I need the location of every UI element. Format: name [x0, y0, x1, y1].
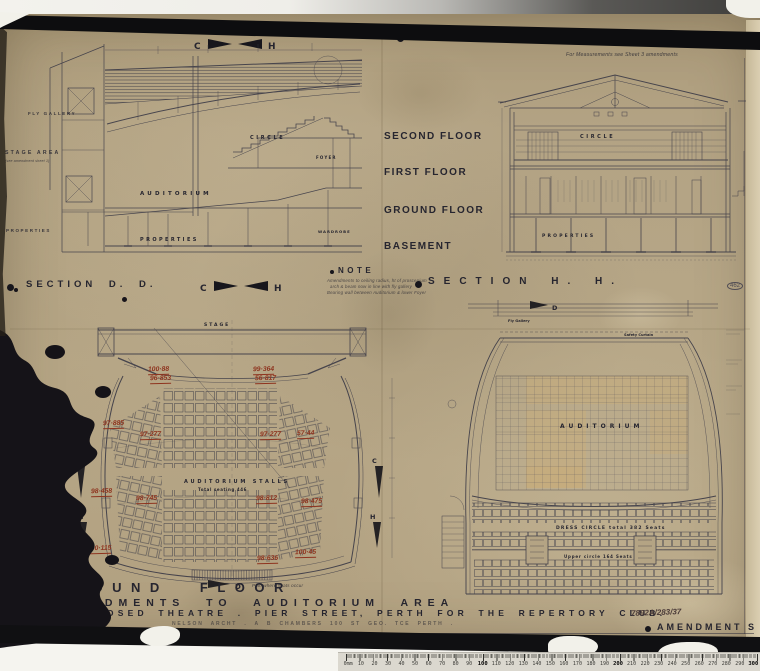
red-level-annotation: 96·853: [150, 375, 171, 384]
bullet-icon: [415, 281, 422, 288]
wardrobe-label: WARDROBE: [318, 229, 351, 234]
ink-spot: [14, 288, 18, 292]
ruler-label: 160: [557, 661, 571, 667]
red-level-annotation: 100·45: [295, 549, 316, 558]
ink-spot: [122, 297, 127, 302]
ruler-label: 270: [706, 661, 720, 667]
red-level-annotation: 98·475: [301, 498, 322, 507]
red-level-annotation: 97·277: [140, 431, 161, 440]
upper-circle-label: Upper circle 164 Seats: [564, 554, 633, 559]
ground-floor-label: GROUND FLOOR: [384, 205, 484, 216]
title-line-project: PROPOSED THEATRE . PIER STREET, PERTH FO…: [66, 608, 666, 618]
red-level-annotation: 100·88: [148, 366, 169, 375]
hh-circle-label: CIRCLE: [580, 134, 615, 140]
ruler-label: 40: [395, 661, 409, 667]
sheet-border-line: [124, 633, 754, 634]
basement-label: BASEMENT: [384, 241, 452, 252]
ruler-label: 70: [435, 661, 449, 667]
hh-top-dimension: 56'-6": [589, 40, 609, 45]
first-floor-label: FIRST FLOOR: [384, 167, 467, 178]
cut-arrow-icon: [373, 522, 381, 548]
first-floor-plan-drawing: D Fly Gallery Safety Curtain AUDITORIUM …: [438, 298, 750, 600]
fly-gallery-plan-label: Fly Gallery: [508, 319, 530, 323]
properties-left-label: PROPERTIES: [6, 228, 51, 233]
ruler-label: 290: [733, 661, 747, 667]
stalls-label: AUDITORIUM STALLS: [184, 479, 290, 485]
ruler-label: 140: [530, 661, 544, 667]
scale-ruler: 0mm1020304050607080901001101201301401501…: [338, 652, 760, 671]
stage-area-note: (see amendment sheet 1): [5, 159, 49, 163]
section-dd-caption: SECTION D. D.: [26, 279, 157, 290]
cut-flag-icon: [214, 281, 238, 291]
amendment-label: AMENDMENT S: [657, 622, 757, 632]
ruler-label: 10: [354, 661, 368, 667]
architect-line: NELSON ARCHT . A B CHAMBERS 100 ST GEO. …: [172, 621, 454, 627]
plan-marker-h: H: [370, 513, 375, 521]
ruler-label: 20: [368, 661, 382, 667]
ruler-label: 90: [462, 661, 476, 667]
bullet-icon: [7, 284, 14, 291]
cut-flag-icon: [244, 281, 268, 291]
ruler-label: 190: [598, 661, 612, 667]
plan-marker-c: C: [372, 457, 377, 465]
ruler-label: 250: [679, 661, 693, 667]
red-level-annotation: 98·812: [256, 495, 277, 504]
ruler-ticks-major: [346, 654, 758, 661]
job-number-handwritten: 7892A/283/37: [631, 607, 682, 618]
ruler-label: 50: [408, 661, 422, 667]
ruler-label: 210: [625, 661, 639, 667]
cut-marker-c: C: [200, 284, 207, 294]
note-title: NOTE: [338, 266, 374, 275]
ruler-label: 280: [720, 661, 734, 667]
ruler-label: 220: [638, 661, 652, 667]
stage-label: STAGE: [204, 322, 230, 328]
ink-blot: [0, 330, 140, 660]
foyer-label: FOYER: [316, 155, 337, 160]
ruler-label: 150: [544, 661, 558, 667]
red-level-annotation: 98·636: [257, 555, 278, 564]
scanned-architectural-drawing: DIMENSIONS TO GOVERN SCALE . 63'-8½" For…: [0, 0, 760, 671]
ruler-label: 100: [476, 661, 490, 667]
cut-arrow-icon: [375, 466, 383, 498]
section-hh-drawing: CIRCLE PROPERTIES: [496, 56, 748, 268]
seating-total-label: Total seating 446: [198, 487, 247, 492]
red-level-annotation: 57·44: [297, 430, 315, 439]
fly-gallery-label: FLY GALLERY: [28, 111, 76, 116]
red-level-annotation: 97·277: [260, 431, 281, 440]
note-line: Bearing wall between Auditorium & lower …: [327, 290, 426, 295]
properties-label: PROPERTIES: [140, 237, 199, 243]
stage-area-label: STAGE AREA: [5, 150, 60, 156]
red-level-annotation: 56·817: [255, 375, 276, 384]
ruler-label: 130: [517, 661, 531, 667]
ruler-label: 260: [692, 661, 706, 667]
ruler-label: 170: [571, 661, 585, 667]
ruler-label: 60: [422, 661, 436, 667]
safety-curtain-label: Safety Curtain: [624, 333, 654, 337]
ruler-label: 120: [503, 661, 517, 667]
plan-marker-d: D: [552, 304, 558, 312]
ruler-label: 200: [611, 661, 625, 667]
ruler-label: 80: [449, 661, 463, 667]
note-line: Amendments to ceiling radius, ht of pros…: [327, 278, 427, 283]
ruler-labels: 0mm1020304050607080901001101201301401501…: [342, 661, 760, 667]
auditorium-label: AUDITORIUM: [140, 191, 212, 197]
ruler-label: 180: [584, 661, 598, 667]
ruler-label: 0mm: [342, 661, 354, 667]
cut-flags-mid: C H: [186, 276, 296, 296]
hh-properties-label: PROPERTIES: [542, 233, 595, 239]
section-dd-drawing: AUDITORIUM CIRCLE PROPERTIES FOYER WARDR…: [28, 40, 362, 268]
bullet-icon: [645, 626, 651, 632]
bullet-icon: [397, 35, 404, 42]
ruler-label: 300: [747, 661, 760, 667]
red-level-annotation: 99·364: [253, 366, 274, 375]
circled-number: 462: [727, 282, 743, 290]
cut-marker-h: H: [274, 284, 282, 294]
ruler-label: 110: [489, 661, 503, 667]
section-hh-caption: SECTION H. H.: [428, 276, 623, 287]
ruler-label: 240: [665, 661, 679, 667]
second-floor-label: SECOND FLOOR: [384, 131, 483, 142]
fp-auditorium-label: AUDITORIUM: [560, 423, 643, 430]
dress-circle-label: DRESS CIRCLE total 382 Seats: [556, 525, 666, 531]
note-line: arch & beam now in line with fly gallery: [330, 284, 412, 289]
circle-label: CIRCLE: [250, 135, 285, 141]
bullet-icon: [330, 270, 334, 274]
ruler-label: 230: [652, 661, 666, 667]
ruler-label: 30: [381, 661, 395, 667]
